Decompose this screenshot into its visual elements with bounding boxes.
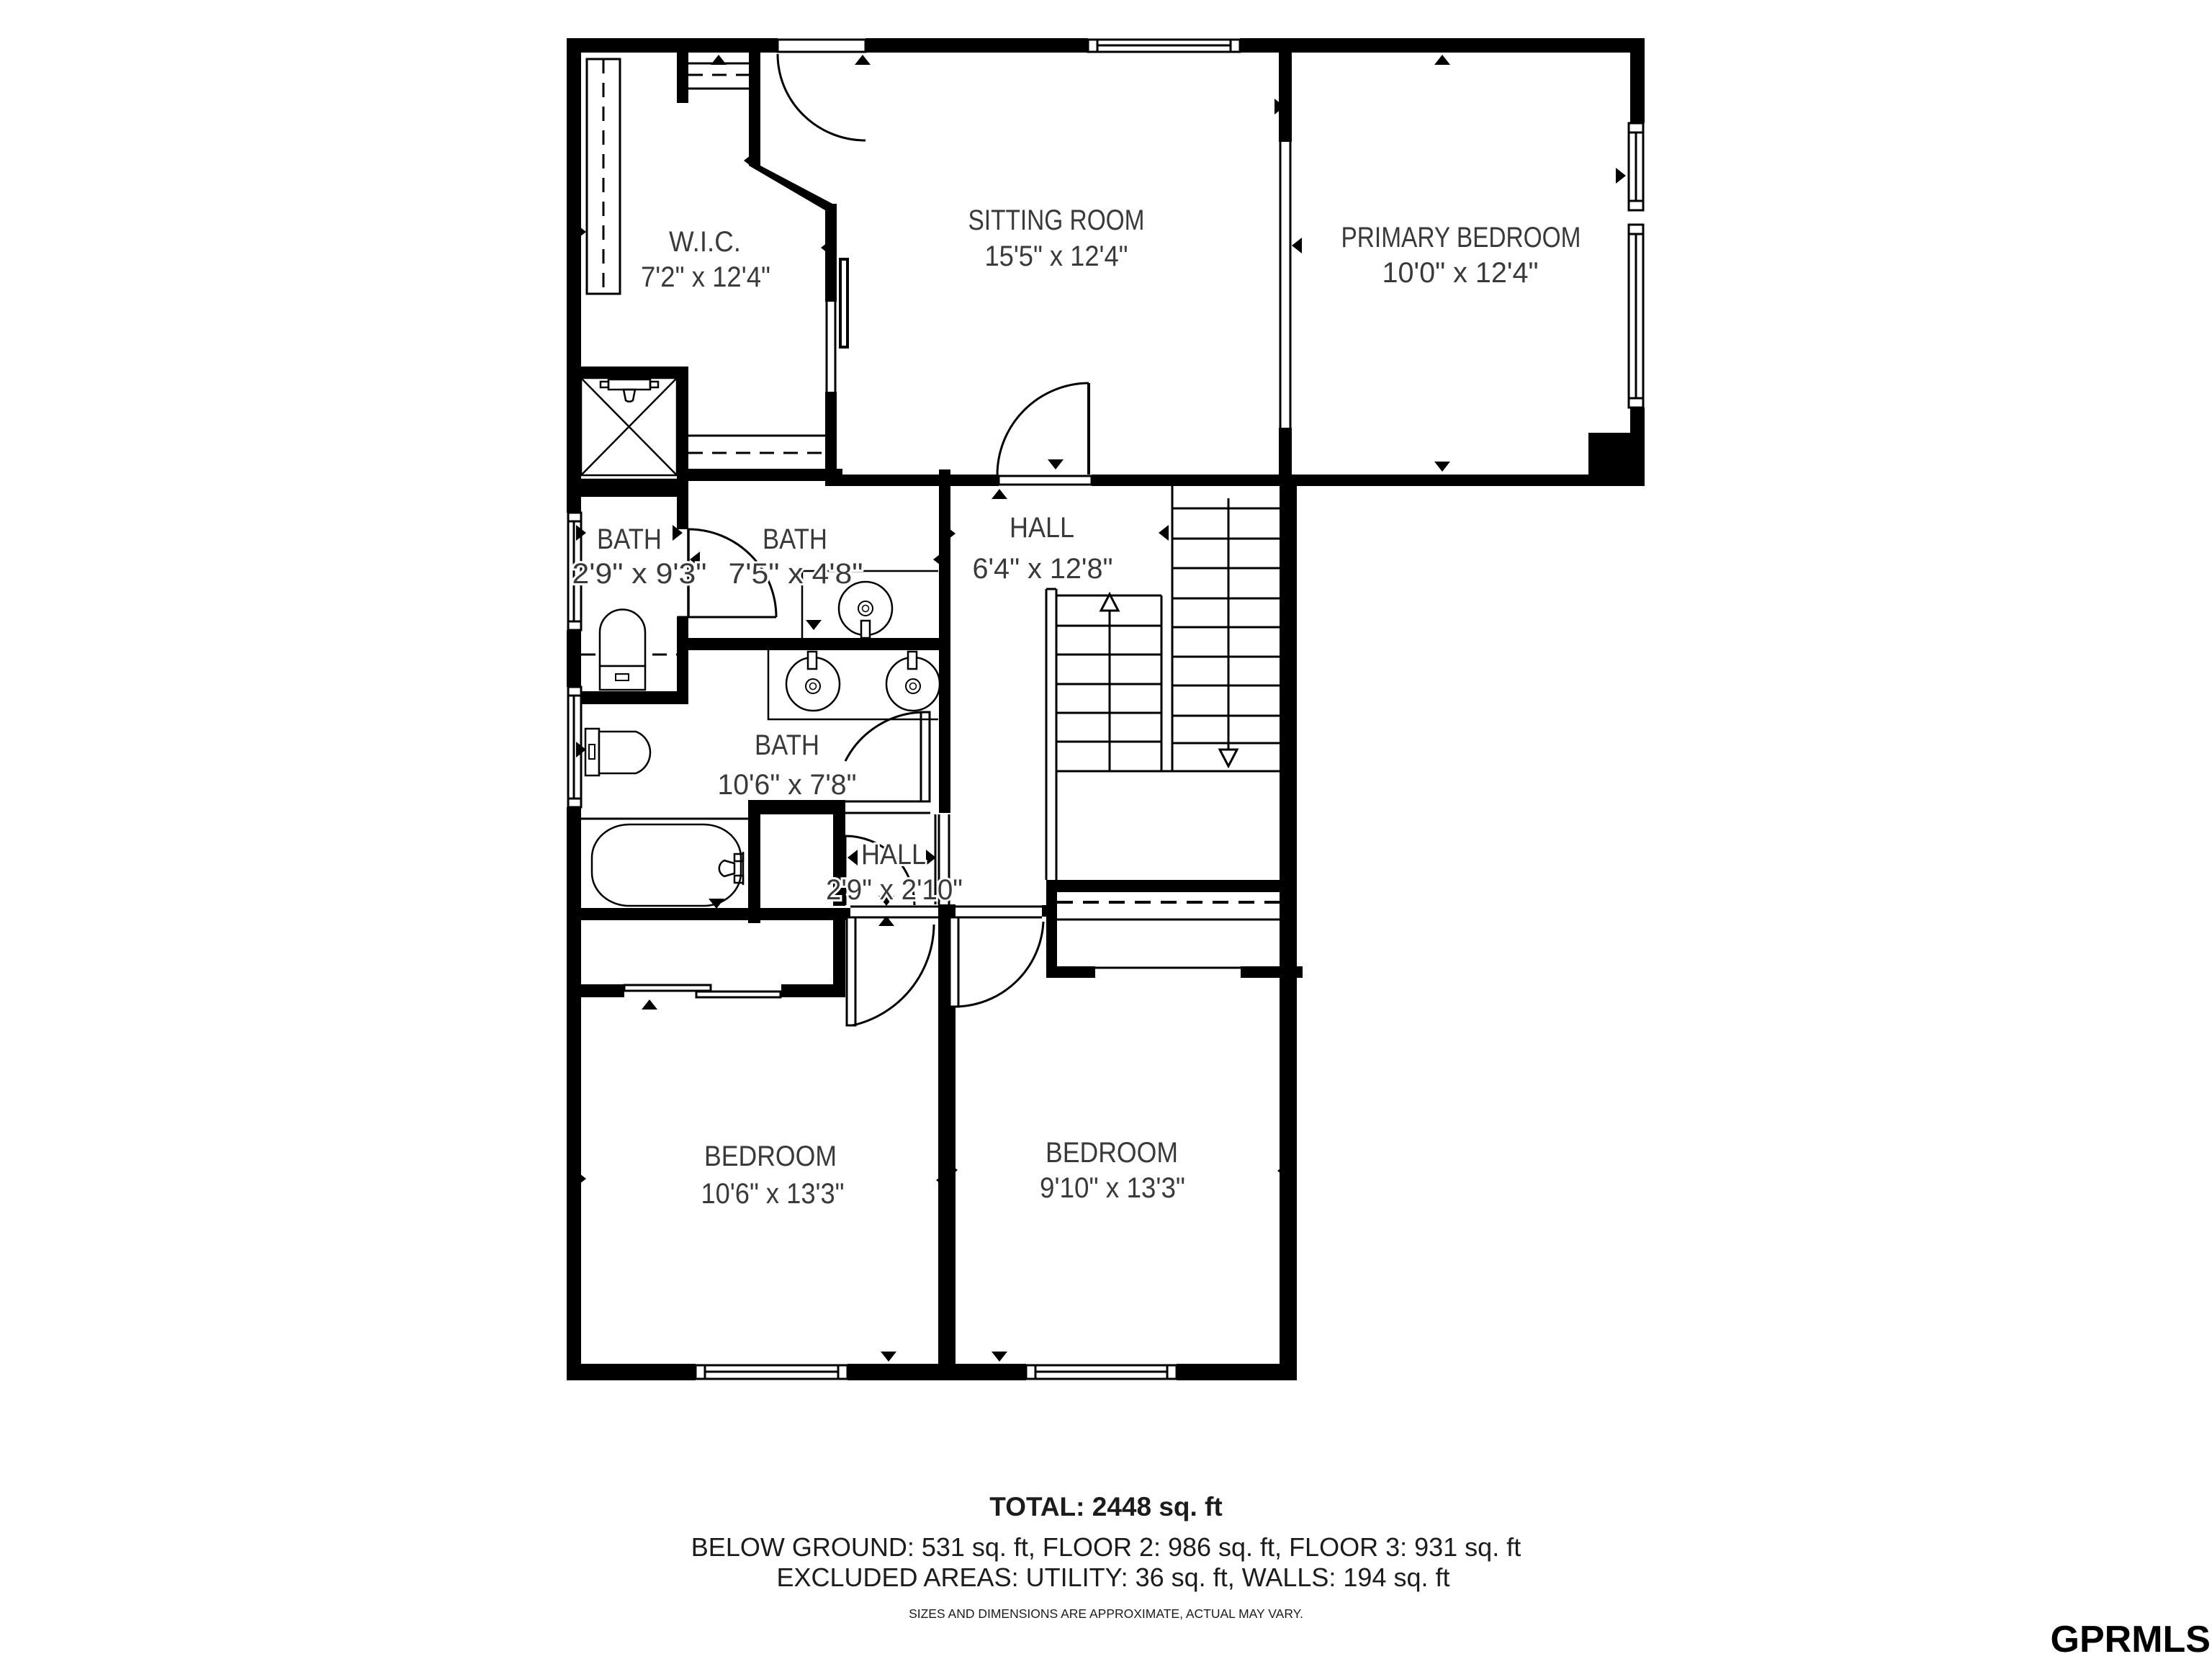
svg-text:GPRMLS: GPRMLS <box>2051 1619 2211 1659</box>
svg-text:7'2" x 12'4": 7'2" x 12'4" <box>641 261 770 293</box>
svg-text:BEDROOM: BEDROOM <box>1046 1137 1178 1169</box>
svg-text:BATH: BATH <box>763 523 827 555</box>
svg-text:EXCLUDED AREAS: UTILITY: 36 sq: EXCLUDED AREAS: UTILITY: 36 sq. ft, WALL… <box>776 1563 1449 1592</box>
svg-text:15'5" x 12'4": 15'5" x 12'4" <box>985 240 1128 272</box>
svg-text:SIZES AND DIMENSIONS ARE APPRO: SIZES AND DIMENSIONS ARE APPROXIMATE, AC… <box>909 1606 1303 1621</box>
svg-text:2'9" x 2'10": 2'9" x 2'10" <box>826 874 963 906</box>
svg-text:HALL: HALL <box>1010 512 1074 544</box>
svg-text:7'5" x 4'8": 7'5" x 4'8" <box>729 558 863 590</box>
svg-text:SITTING ROOM: SITTING ROOM <box>968 204 1145 236</box>
svg-text:6'4" x 12'8": 6'4" x 12'8" <box>973 553 1113 585</box>
svg-text:BELOW GROUND: 531 sq. ft, FLOO: BELOW GROUND: 531 sq. ft, FLOOR 2: 986 s… <box>691 1532 1521 1562</box>
svg-text:BATH: BATH <box>755 729 819 761</box>
svg-text:9'10" x 13'3": 9'10" x 13'3" <box>1040 1172 1185 1204</box>
svg-text:TOTAL: 2448 sq. ft: TOTAL: 2448 sq. ft <box>989 1492 1222 1521</box>
svg-text:HALL: HALL <box>861 839 926 871</box>
svg-text:10'0" x 12'4": 10'0" x 12'4" <box>1382 257 1539 289</box>
svg-text:W.I.C.: W.I.C. <box>669 226 741 258</box>
svg-text:2'9" x 9'3": 2'9" x 9'3" <box>572 558 707 590</box>
svg-text:BATH: BATH <box>597 523 662 555</box>
svg-text:BEDROOM: BEDROOM <box>704 1141 837 1172</box>
svg-text:10'6" x 13'3": 10'6" x 13'3" <box>701 1178 845 1210</box>
svg-text:10'6" x 7'8": 10'6" x 7'8" <box>718 769 857 801</box>
svg-text:PRIMARY BEDROOM: PRIMARY BEDROOM <box>1341 222 1581 253</box>
